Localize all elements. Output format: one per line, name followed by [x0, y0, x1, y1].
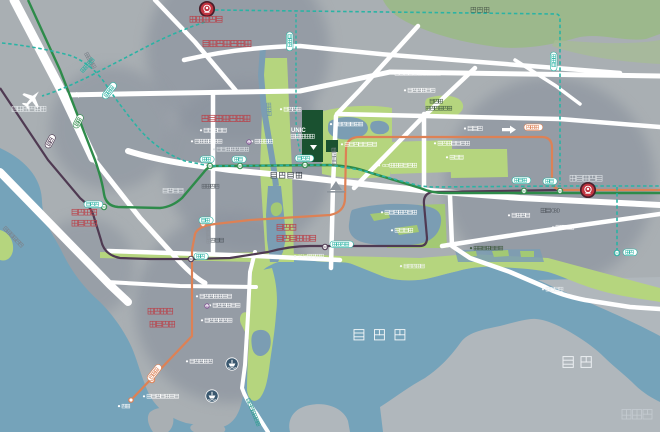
svg-text:UNIC: UNIC — [291, 128, 306, 134]
svg-text:M: M — [558, 189, 561, 194]
svg-text:M: M — [206, 305, 209, 309]
svg-text:M: M — [248, 141, 251, 145]
svg-text:M: M — [189, 257, 192, 262]
svg-text:M: M — [238, 164, 241, 169]
svg-text:M: M — [615, 251, 618, 256]
svg-text:D: D — [557, 208, 561, 214]
svg-text:M: M — [522, 189, 525, 194]
svg-text:M: M — [208, 164, 211, 169]
svg-text:M: M — [303, 163, 306, 168]
svg-text:M: M — [323, 245, 326, 250]
